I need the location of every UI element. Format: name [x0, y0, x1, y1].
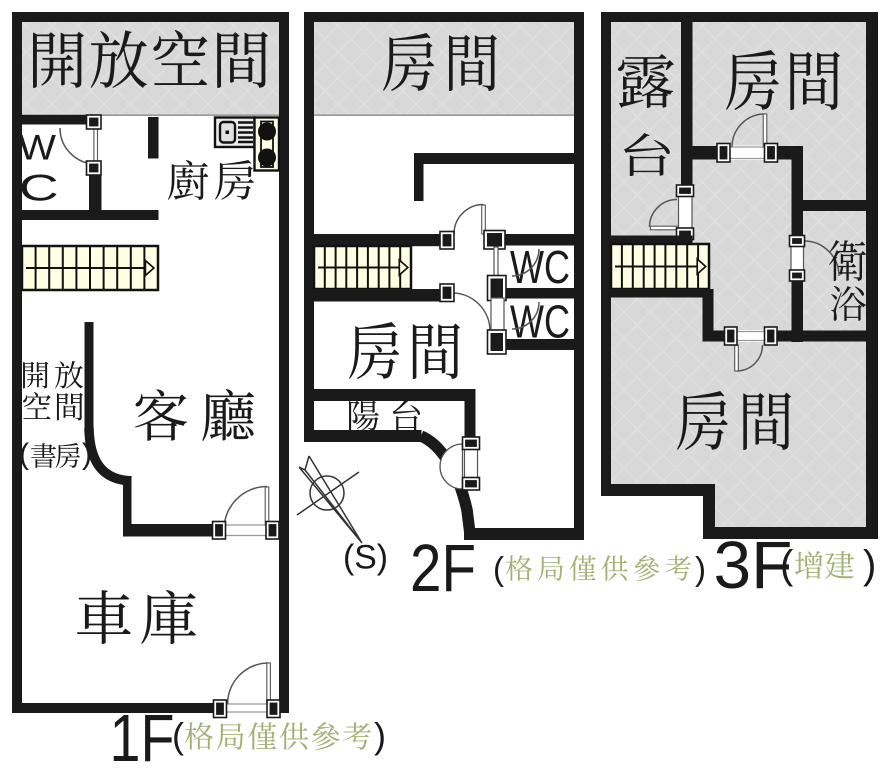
svg-text:): ) [695, 550, 706, 587]
svg-text:(: ( [493, 550, 504, 587]
svg-text:WC: WC [510, 241, 570, 293]
svg-text:(: ( [172, 715, 184, 756]
svg-text:(: ( [19, 438, 29, 471]
svg-text:1F: 1F [110, 701, 175, 776]
svg-text:): ) [82, 438, 92, 471]
svg-text:): ) [374, 715, 386, 756]
svg-text:W: W [19, 128, 57, 168]
svg-text:(: ( [780, 543, 794, 587]
svg-text:2F: 2F [410, 531, 476, 606]
svg-text:): ) [863, 543, 876, 587]
svg-text:(S): (S) [343, 539, 388, 577]
svg-text:C: C [19, 167, 59, 209]
